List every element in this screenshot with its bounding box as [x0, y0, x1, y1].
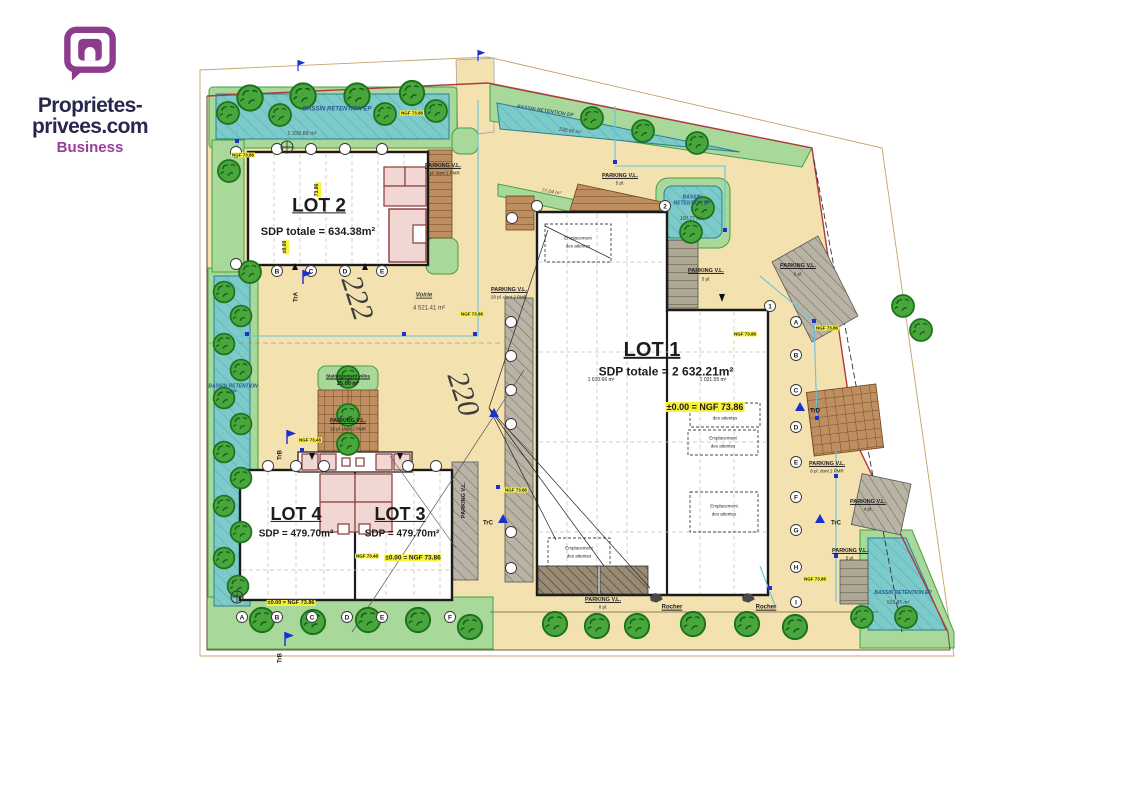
tree-icon — [217, 102, 239, 124]
ngf-chip: NGF 73.86 — [815, 325, 839, 330]
parking-label: PARKING V.L. — [688, 268, 724, 274]
basin-label: BASSIN RETENTION EP — [669, 195, 715, 206]
tree-icon — [228, 576, 249, 597]
tree-icon — [290, 83, 315, 108]
tree-icon — [214, 496, 235, 517]
site-plan-drawing: A B C D E F G H I 2 1 B C D E A B C D E … — [0, 0, 1131, 800]
ngf-chip: NGF 73.86 — [460, 311, 484, 316]
tree-icon — [625, 614, 649, 638]
grid-number: 1 — [768, 304, 772, 311]
flag-label-trC: TrC — [483, 521, 493, 528]
brand-logo: Proprietes- privees.com Business — [22, 24, 158, 156]
tree-icon — [406, 608, 430, 632]
grid-number: 2 — [663, 204, 667, 211]
tree-icon — [581, 107, 603, 129]
parking-label: PARKING V.L. — [330, 418, 366, 424]
lot4-title: LOT 4 — [270, 504, 321, 524]
tree-icon — [231, 306, 252, 327]
basin-label: BASSIN RETENTION EP — [874, 591, 931, 597]
lot3-level: ±0.00 = NGF 73.86 — [384, 554, 441, 561]
lot4-sdp: SDP = 479.70m² — [259, 528, 334, 539]
tree-icon — [680, 221, 702, 243]
parking-detail: 20 pl. dont 2 PMR — [491, 294, 527, 299]
lot3-sdp: SDP = 479.70m² — [365, 528, 440, 539]
flag-label-trD: TrD — [810, 409, 820, 416]
parking-label: PARKING V.L. — [832, 548, 868, 554]
basin-label: BASSIN RETENTION EP — [303, 107, 372, 114]
parking-detail: 6 pl. — [794, 271, 803, 276]
tree-icon — [458, 615, 482, 639]
parking-detail: 7 pl. dont 1 PMR — [426, 170, 460, 175]
tree-icon — [681, 612, 705, 636]
ngf-chip: NGF 73.86 — [231, 152, 255, 157]
tree-icon — [231, 522, 252, 543]
parking-detail: 5 pl. — [616, 180, 625, 185]
tree-icon — [735, 612, 759, 636]
rocher-label: Rocher — [756, 605, 777, 612]
parking-label: PARKING V.L. — [491, 287, 527, 293]
ngf-chip: NGF 73.48 — [298, 437, 322, 442]
tree-icon — [337, 433, 359, 455]
grid-letter: G — [793, 528, 798, 535]
lot1-area-right: 1 021.55 m² — [700, 378, 727, 384]
grid-letter: D — [794, 425, 799, 432]
tree-icon — [543, 612, 567, 636]
ngf-chip: NGF 73.86 — [400, 110, 424, 115]
grid-letter: E — [380, 615, 385, 622]
flag-label-trC: TrC — [831, 521, 841, 528]
reservation-line2: des attentes — [712, 511, 737, 516]
ngf-chip: NGF 73.86 — [803, 576, 827, 581]
parking-label: PARKING V.L. — [585, 597, 621, 603]
ngf-chip: NGF 73.86 — [504, 487, 528, 492]
tree-icon — [895, 606, 917, 628]
tree-icon — [214, 442, 235, 463]
ngf-chip: NGF 73.86 — [733, 331, 757, 336]
bike-parking-area: 25.00 m² — [337, 381, 359, 387]
tree-icon — [214, 548, 235, 569]
tree-icon — [851, 606, 873, 628]
parking-label: PARKING V.L. — [809, 461, 845, 467]
grid-letter: D — [345, 615, 350, 622]
lot2-level-zero: ±0.00 — [283, 240, 289, 254]
lot2-title: LOT 2 — [292, 195, 346, 216]
tree-icon — [231, 360, 252, 381]
grid-letter: F — [448, 615, 452, 622]
tree-icon — [214, 282, 235, 303]
rocher-label: Rocher — [662, 605, 683, 612]
lot1-area-left: 1 610.66 m² — [588, 378, 615, 384]
lot4-level: ±0.00 = NGF 73.86 — [267, 600, 316, 606]
site-plan-page: A B C D E F G H I 2 1 B C D E A B C D E … — [0, 0, 1131, 800]
grid-letter: F — [794, 495, 798, 502]
grid-letter: A — [794, 320, 799, 327]
reservation-line1: Emplacement — [565, 545, 593, 550]
parking-detail: 8 pl. dont 2 PMR — [810, 468, 844, 473]
tree-icon — [214, 334, 235, 355]
lot1-title: LOT 1 — [624, 339, 681, 361]
grid-letter: D — [343, 269, 348, 276]
brand-name-line1: Proprietes- — [22, 95, 158, 116]
service-bays — [538, 566, 648, 594]
parking-detail: 10 pl. dont 2 PMR — [330, 426, 366, 431]
parking-label: PARKING V.L. — [602, 173, 638, 179]
reservation-line1: Emplacement — [709, 435, 737, 440]
flag-label-trB: TrB — [278, 450, 285, 460]
grid-letter: B — [275, 269, 280, 276]
tree-icon — [686, 132, 708, 154]
reservation-line1: Emplacement — [564, 235, 592, 240]
grid-letter: E — [380, 269, 385, 276]
tree-icon — [892, 295, 914, 317]
grid-letter: B — [275, 615, 280, 622]
reservation-line2: des attentes — [713, 415, 738, 420]
parking-detail: 5 pl. — [702, 276, 711, 281]
tree-icon — [425, 100, 447, 122]
access-road — [456, 58, 494, 136]
parking-detail: 8 pl. — [599, 604, 608, 609]
tree-icon — [585, 614, 609, 638]
parking-east-5 — [840, 560, 868, 604]
basin-area: 100.77 m² — [680, 217, 703, 223]
grid-letter: C — [310, 615, 315, 622]
brand-division: Business — [22, 139, 158, 156]
ngf-chip: NGF 73.48 — [355, 553, 379, 558]
lot1-level: ±0.00 = NGF 73.86 — [666, 402, 745, 412]
grid-letter: H — [794, 565, 799, 572]
tree-icon — [400, 81, 424, 105]
parking-label: PARKING V.L. — [850, 499, 886, 505]
grid-letter: C — [794, 388, 799, 395]
parking-detail: 5 pl. — [846, 555, 855, 560]
parking-label: PARKING V.L. — [780, 263, 816, 269]
grid-letter: B — [794, 353, 799, 360]
grid-letter: I — [795, 600, 797, 607]
lot2-sdp: SDP totale = 634.38m² — [261, 226, 375, 238]
tree-icon — [239, 261, 261, 283]
reservation-line2: des attentes — [566, 243, 591, 248]
parking-lot3-east — [452, 462, 478, 580]
brand-name-line2: privees.com — [22, 116, 158, 137]
tree-icon — [231, 414, 252, 435]
parking-central-20 — [505, 298, 533, 582]
tree-icon — [250, 608, 274, 632]
grid-letter: A — [240, 615, 245, 622]
tree-icon — [218, 160, 240, 182]
road-area: 4 521.41 m² — [413, 306, 445, 313]
bike-parking-label: Stationnement vélos — [326, 373, 370, 378]
lot2-level: 73.86 — [315, 183, 321, 198]
tree-icon — [374, 103, 396, 125]
basin-area: 519.85 m² — [887, 601, 910, 607]
basin-label: BASSIN RETENTION EP — [205, 384, 261, 395]
tree-icon — [237, 85, 262, 110]
tree-icon — [783, 615, 807, 639]
basin-area: 1 328.89 m² — [287, 131, 316, 137]
flag-label-trA: TrA — [294, 292, 301, 302]
road-label: Voirie — [416, 293, 432, 300]
tree-icon — [632, 120, 654, 142]
tree-icon — [269, 104, 291, 126]
parking-label-vertical: PARKING V.L. — [461, 482, 467, 518]
parking-detail: 4 pl. — [864, 506, 873, 511]
flag-label-trB: TrB — [278, 653, 285, 663]
tree-icon — [910, 319, 932, 341]
tree-icon — [231, 468, 252, 489]
tree-icon — [356, 608, 380, 632]
brand-house-icon — [61, 24, 119, 90]
grid-letter: E — [794, 460, 799, 467]
parking-label: PARKING V.L. — [425, 163, 461, 169]
lot3-title: LOT 3 — [374, 504, 425, 524]
tree-icon — [344, 83, 369, 108]
reservation-line1: Emplacement — [710, 503, 738, 508]
reservation-line2: des attentes — [567, 553, 592, 558]
reservation-line2: des attentes — [711, 443, 736, 448]
